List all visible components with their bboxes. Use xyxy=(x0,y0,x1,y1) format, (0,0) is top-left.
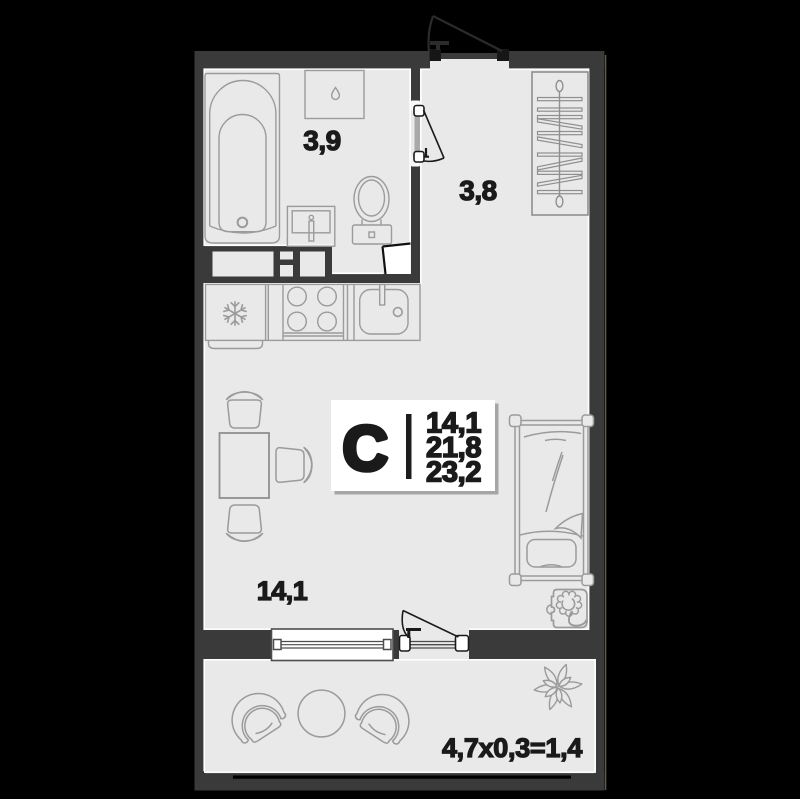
svg-text:3,9: 3,9 xyxy=(303,125,340,156)
svg-text:4,7x0,3=1,4: 4,7x0,3=1,4 xyxy=(442,733,582,763)
svg-text:3,8: 3,8 xyxy=(459,175,496,206)
svg-text:23,2: 23,2 xyxy=(426,457,481,489)
svg-text:14,1: 14,1 xyxy=(257,576,308,606)
svg-text:С: С xyxy=(343,414,388,484)
